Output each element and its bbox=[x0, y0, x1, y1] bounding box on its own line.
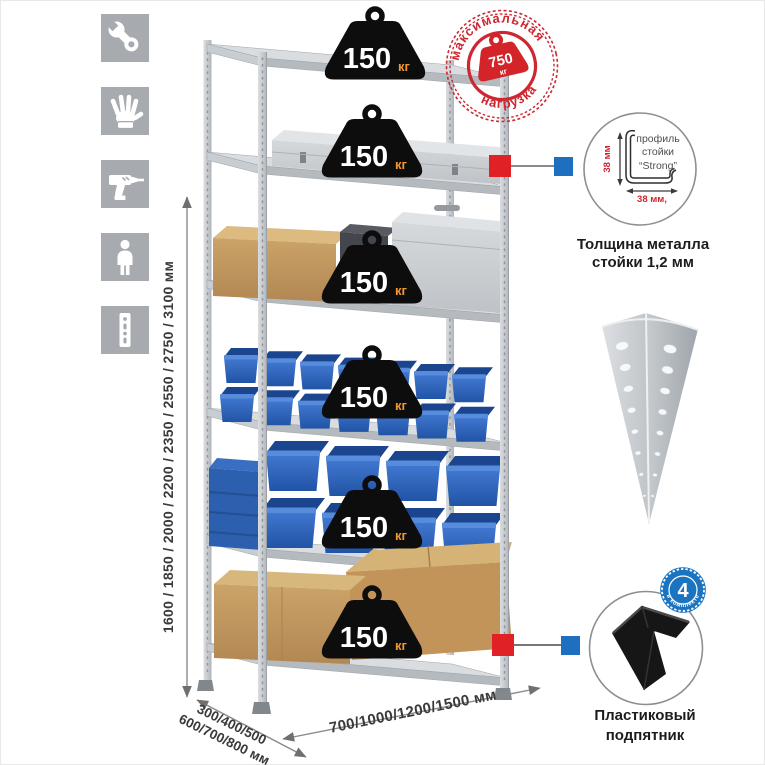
badge-count: 4 bbox=[677, 580, 689, 602]
weight-badge-shelf-1: 150кг bbox=[325, 9, 425, 80]
blue-marker-bottom bbox=[561, 636, 580, 655]
rear-left-foot bbox=[197, 680, 214, 691]
height-dimension: 1600 / 1850 / 2000 / 2200 / 2350 / 2550 … bbox=[160, 197, 187, 697]
badge-value: 150 bbox=[340, 512, 388, 544]
red-marker-top bbox=[489, 155, 511, 177]
profile-dim-vertical: 38 мм bbox=[602, 145, 613, 172]
blue-marker-top bbox=[554, 157, 573, 176]
badge-unit: кг bbox=[395, 398, 408, 413]
perforated-post-icon bbox=[101, 306, 149, 354]
foot-callout-connector bbox=[492, 634, 580, 656]
work-gloves-icon bbox=[101, 87, 149, 135]
included-count-badge: 4 в комплекте bbox=[660, 567, 706, 613]
profile-label-1: профиль bbox=[636, 133, 680, 145]
badge-unit: кг bbox=[395, 157, 408, 172]
depth-dimension: 300/400/500 600/700/800 мм bbox=[177, 696, 306, 765]
foot-caption-1: Пластиковый bbox=[594, 707, 695, 724]
red-marker-bottom bbox=[492, 634, 514, 656]
profile-callout-connector bbox=[489, 155, 573, 177]
front-left-foot bbox=[252, 702, 271, 714]
badge-unit: кг bbox=[395, 283, 408, 298]
badge-unit: кг bbox=[395, 528, 408, 543]
corner-post-image bbox=[602, 313, 698, 524]
height-dimension-label: 1600 / 1850 / 2000 / 2200 / 2350 / 2550 … bbox=[160, 261, 176, 633]
post-profile-detail: 38 мм 38 мм, профиль стойки “Strong” Тол… bbox=[577, 113, 710, 271]
wrench-icon bbox=[101, 14, 149, 62]
width-dimension-label: 700/1000/1200/1500 мм bbox=[328, 686, 498, 737]
shelving-infographic: 1600 / 1850 / 2000 / 2200 / 2350 / 2550 … bbox=[0, 0, 765, 765]
profile-label-3: “Strong” bbox=[639, 160, 677, 172]
feature-icons-sidebar bbox=[101, 14, 149, 354]
badge-value: 150 bbox=[340, 382, 388, 414]
profile-dim-horizontal: 38 мм, bbox=[637, 194, 667, 205]
thickness-caption-1: Толщина металла bbox=[577, 236, 710, 253]
badge-value: 150 bbox=[343, 43, 391, 75]
profile-label-2: стойки bbox=[642, 146, 674, 158]
badge-unit: кг bbox=[395, 638, 408, 653]
foot-caption-2: подпятник bbox=[606, 727, 685, 744]
badge-value: 150 bbox=[340, 622, 388, 654]
badge-value: 150 bbox=[340, 141, 388, 173]
drill-icon bbox=[101, 160, 149, 208]
badge-value: 150 bbox=[340, 267, 388, 299]
person-icon bbox=[101, 233, 149, 281]
plastic-foot-detail: 4 в комплекте Пластиковый подпятник bbox=[590, 567, 706, 744]
badge-unit: кг bbox=[398, 59, 411, 74]
weight-badge-shelf-2: 150кг bbox=[322, 107, 422, 178]
thickness-caption-2: стойки 1,2 мм bbox=[592, 254, 694, 271]
